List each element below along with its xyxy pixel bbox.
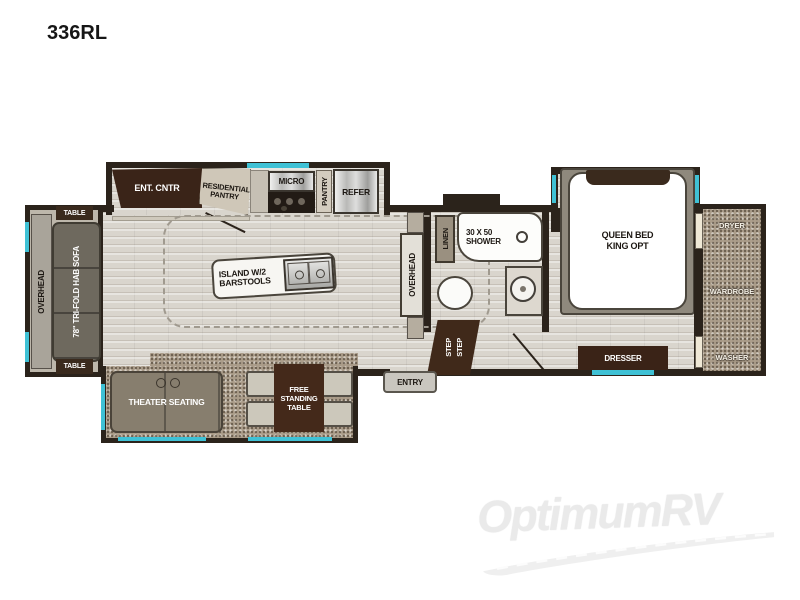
overhead-cabinet-left: OVERHEAD [31,214,52,369]
bedroom-window [695,175,699,203]
vanity [505,266,543,316]
ent-cntr-label: ENT. CNTR [134,183,179,193]
floorplan-page: 336RL ENT. CNTR RESIDENTIAL PANTRY MICRO… [0,0,800,600]
wardrobe-label: WARDROBE [703,287,761,296]
pantry-label: PANTRY [320,177,329,206]
double-sink [283,256,334,291]
bedroom-window [552,175,556,203]
burner [281,206,287,211]
dresser-label: DRESSER [604,354,641,363]
refer-label: REFER [342,187,370,197]
microwave: MICRO [268,171,315,192]
shower-drain [516,231,528,243]
kitchen-island: ISLAND W/2 BARSTOOLS [211,252,337,299]
slide-window [101,384,105,430]
cupholder [170,378,180,388]
sink-basin [288,262,310,285]
slide-window [25,222,29,252]
toilet [437,276,473,310]
theater-seating: THEATER SEATING [110,371,223,433]
washer-label: WASHER [703,353,761,362]
closet-door [695,213,703,249]
step-label: STEP [455,338,464,357]
linen-cabinet: LINEN [435,215,455,263]
sink-drain [295,270,305,280]
slide-window [118,437,206,441]
entry-door: ENTRY [383,371,437,393]
burner [274,198,281,205]
linen-label: LINEN [441,228,450,250]
theater-seating-label: THEATER SEATING [128,397,204,407]
overhead-cabinet-bath: OVERHEAD [400,233,424,317]
micro-label: MICRO [279,177,305,186]
queen-bed: QUEEN BED KING OPT [568,172,687,310]
wall-segment [443,194,500,207]
watermark: OptimumRV [476,481,791,592]
rear-closet: DRYER WARDROBE WASHER [698,204,766,376]
queen-bed-label: QUEEN BED KING OPT [595,230,661,252]
table-top: TABLE [56,206,93,220]
slide-window [248,437,332,441]
sink-basin [309,261,331,284]
table-bottom: TABLE [56,359,93,374]
sink-drain [520,286,526,292]
shower-label: 30 X 50 SHOWER [459,228,514,246]
bedroom-bottom-window [592,370,654,375]
dryer-label: DRYER [703,221,761,230]
sofa-label: 78" TRI-FOLD HAB SOFA [72,246,81,338]
closet-door [695,336,703,368]
refrigerator: REFER [333,169,379,214]
step-label: STEP [444,338,453,357]
dresser: DRESSER [578,346,668,370]
table-top-label: TABLE [64,210,86,217]
shower: 30 X 50 SHOWER [457,212,543,262]
entry-label: ENTRY [397,378,423,387]
burner [286,198,293,205]
table-bottom-label: TABLE [64,363,86,370]
galley-window [247,163,309,168]
counter-end [407,317,424,339]
range-cooktop [268,192,315,213]
overhead-left-label: OVERHEAD [37,270,46,314]
burner [298,198,305,205]
slide-window [25,332,29,362]
page-title: 336RL [47,22,107,45]
free-standing-table-label: FREE STANDING TABLE [277,385,321,412]
counter-end [407,212,424,233]
dinette-chair [320,401,353,427]
cupholder [156,378,166,388]
free-standing-table: FREE STANDING TABLE [274,364,324,432]
bathroom-wall [542,211,549,332]
entertainment-center: ENT. CNTR [112,168,202,208]
galley-counter [250,170,269,213]
sink-drain [316,269,326,279]
overhead-bath-label: OVERHEAD [408,253,417,297]
pantry-cabinet: PANTRY [316,170,332,213]
bathroom-sink [510,276,536,302]
headboard [586,170,670,185]
residential-pantry-label: RESIDENTIAL PANTRY [201,181,248,201]
dinette-chair [320,371,353,397]
tri-fold-sofa: 78" TRI-FOLD HAB SOFA [52,222,101,362]
island-label: ISLAND W/2 BARSTOOLS [214,266,285,289]
